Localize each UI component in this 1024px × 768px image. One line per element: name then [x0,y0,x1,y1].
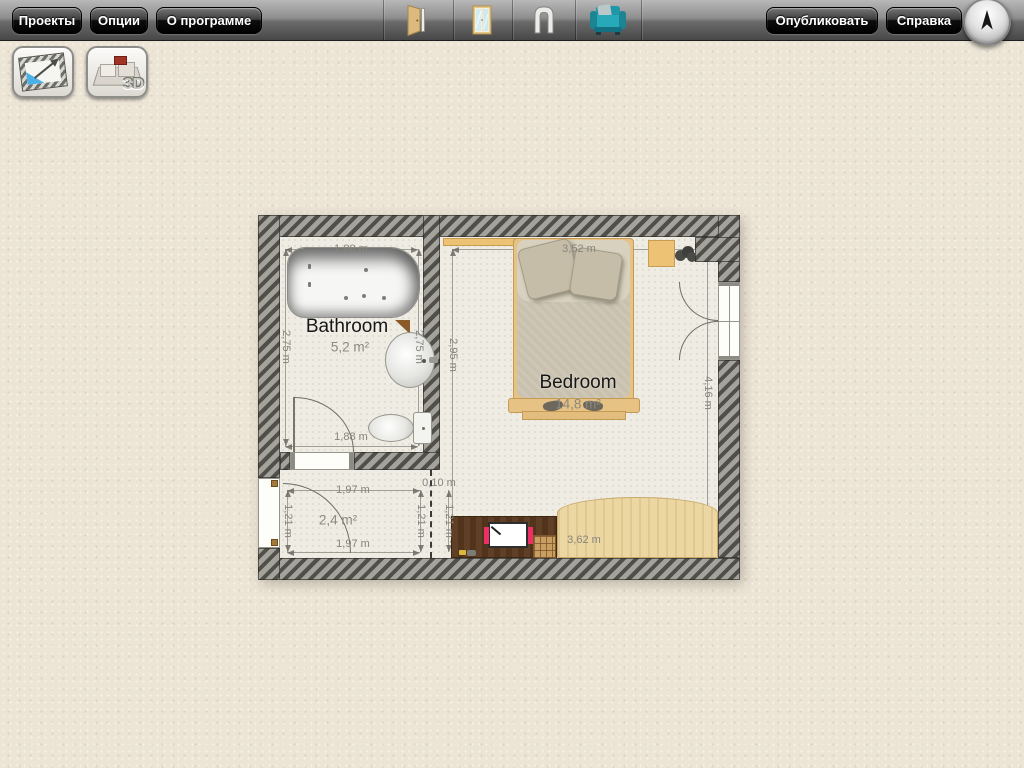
window-icon [464,2,500,38]
dim-label: 1,21 m [443,504,455,538]
options-button[interactable]: Опции [90,7,148,34]
nightstand[interactable] [648,240,675,267]
dim-label: 1,88 m [334,431,368,443]
door-tool-button[interactable] [400,2,436,43]
armchair-icon [585,2,631,38]
bathtub[interactable] [287,247,420,318]
window-tool-button[interactable] [464,2,500,43]
dim-label: 1,97 m [336,538,370,550]
room-name-bathroom: Bathroom [306,316,388,338]
washbasin[interactable] [385,332,435,388]
door-icon [400,2,436,38]
projects-button[interactable]: Проекты [12,7,82,34]
dim-label: 0,10 m [422,477,456,489]
bathroom-door[interactable] [290,452,354,470]
view-2d-button[interactable] [12,46,74,98]
dim-label: 1,21 m [415,504,427,538]
toilet-tank[interactable] [413,412,432,444]
dim-label: 1,88 m [334,243,368,255]
3d-label: 3D [124,76,144,94]
floor-plan: Bathroom 5,2 m² 1,88 m 1,88 m 2,75 m 2,7… [258,215,740,580]
wall-bottom [258,558,740,580]
wall-left-upper [258,215,280,478]
armchair-tool-button[interactable] [585,2,631,43]
dim-label: 3,52 m [562,243,596,255]
dim-label: 1,97 m [336,484,370,496]
laptop[interactable] [488,522,528,548]
2d-plan-icon [19,53,67,90]
dim-label: 3,62 m [567,534,601,546]
editor-canvas[interactable]: 3D [0,41,1024,768]
dimension-line [452,249,453,548]
room-area-bathroom: 5,2 m² [331,340,369,355]
arch-tool-button[interactable] [525,2,563,43]
entrance-door[interactable] [258,478,280,548]
wall-right-lower [718,360,740,558]
room-name-bedroom: Bedroom [539,372,616,394]
toolbar-separator [383,0,384,40]
view-3d-button[interactable]: 3D [86,46,148,98]
wall-top [258,215,740,237]
wall-left-lower [258,548,280,580]
wall-corner-block [695,237,740,262]
balcony-french-window[interactable] [718,282,740,360]
chair[interactable] [533,535,556,558]
toolbar-separator [512,0,513,40]
arch-opening-icon [525,2,563,38]
bed-foot-step [522,411,626,420]
north-arrow-icon [978,9,996,33]
toolbar-separator [641,0,642,40]
publish-button[interactable]: Опубликовать [766,7,878,34]
toolbar-separator [575,0,576,40]
room-area-hallway: 2,4 m² [319,513,357,528]
wall-bathroom-bottom-right [354,452,440,470]
top-toolbar: Проекты Опции О программе [0,0,1024,41]
wardrobe[interactable] [557,497,718,558]
toolbar-separator [453,0,454,40]
room-area-bedroom: 14,8 m² [555,397,601,412]
about-button[interactable]: О программе [156,7,262,34]
dim-label: 4,16 m [702,376,714,410]
dim-label: 2,75 m [413,330,425,364]
3d-view-icon: 3D [93,53,141,91]
dim-label: 2,95 m [447,338,459,372]
dim-label: 1,21 m [282,504,294,538]
dim-label: 2,75 m [280,330,292,364]
wall-bathroom-bottom-left [280,452,290,470]
help-button[interactable]: Справка [886,7,962,34]
compass-button[interactable] [963,0,1011,46]
toilet-bowl[interactable] [368,414,414,442]
